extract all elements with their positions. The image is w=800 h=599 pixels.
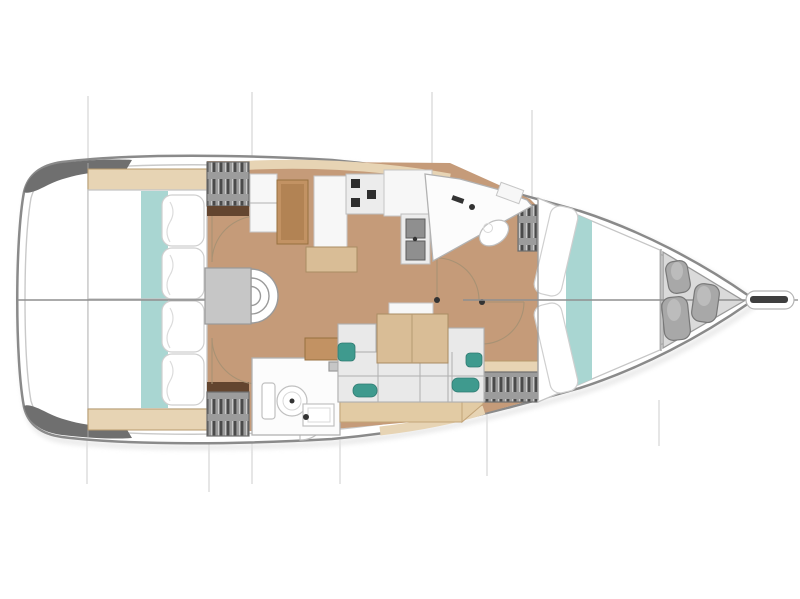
galley-cabinet (314, 176, 347, 253)
aft-cabin-bottom (88, 299, 207, 430)
burner-icon (351, 198, 360, 207)
grating-icon (207, 162, 249, 206)
aft-cabin-top (88, 169, 207, 300)
burner-icon (367, 190, 376, 199)
locker-trim (207, 206, 249, 216)
accent-cushion (353, 384, 377, 397)
side-table (305, 338, 339, 360)
accent-cushion (466, 353, 482, 367)
shower-drain-icon (329, 362, 338, 371)
headboard-shelf (88, 169, 207, 190)
grating-icon (483, 372, 538, 402)
burner-icon (351, 179, 360, 188)
toilet-tank (262, 383, 275, 419)
anchor-roller-icon (750, 296, 788, 303)
sofa-plinth (340, 402, 462, 422)
bowsprit (746, 291, 798, 309)
faucet-icon (303, 414, 309, 420)
locker-trim (483, 361, 538, 372)
sink-icon (406, 241, 425, 260)
accent-cushion (452, 378, 479, 392)
floor-plan-canvas (0, 0, 800, 599)
companionway (205, 268, 278, 324)
mast-post (434, 297, 440, 303)
sink-icon (406, 219, 425, 238)
faucet-icon (413, 237, 417, 241)
faucet-icon (469, 204, 475, 210)
chart-table-top (281, 184, 304, 240)
grating-icon (207, 392, 249, 436)
companionway-landing (205, 268, 251, 324)
headboard-shelf (88, 409, 207, 430)
accent-cushion (338, 343, 355, 361)
head-aft (252, 358, 340, 440)
galley-bench (306, 247, 357, 272)
yacht-floor-plan (0, 0, 800, 599)
locker-trim (207, 382, 249, 392)
